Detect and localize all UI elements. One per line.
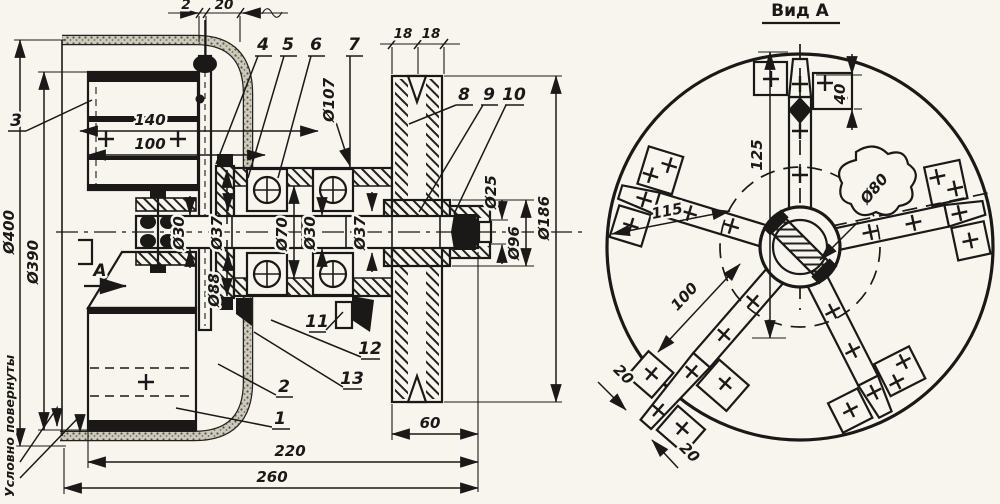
dim-2: 2 bbox=[181, 0, 190, 13]
part-8: 8 bbox=[458, 85, 470, 105]
dim-dia390: Ø390 bbox=[24, 240, 42, 285]
drawing-sheet: 2 20 18 18 140 100 Ø400 Ø390 Ø30 bbox=[0, 0, 1000, 504]
dim-dia30b: Ø30 bbox=[301, 216, 319, 251]
part-1: 1 bbox=[274, 409, 286, 429]
part-11: 11 bbox=[305, 312, 329, 332]
note-rotated-label: Условно повернуты bbox=[2, 355, 17, 497]
part-4: 4 bbox=[256, 35, 269, 55]
note-rotated: Условно повернуты bbox=[2, 355, 80, 497]
dim-dia30a: Ø30 bbox=[170, 216, 188, 251]
view-arrow-label: А bbox=[91, 261, 106, 281]
dim-220: 220 bbox=[274, 442, 305, 460]
dim-dia37a: Ø37 bbox=[208, 216, 226, 251]
gland-box bbox=[336, 302, 352, 328]
part-9: 9 bbox=[483, 85, 495, 105]
part-7: 7 bbox=[348, 35, 360, 55]
part-3: 3 bbox=[10, 111, 22, 131]
dim-dia70: Ø70 bbox=[273, 217, 291, 252]
part-2: 2 bbox=[278, 377, 290, 397]
dim-60: 60 bbox=[420, 414, 441, 432]
part-12: 12 bbox=[358, 339, 382, 359]
dim-dia186: Ø186 bbox=[535, 196, 553, 241]
dim-140: 140 bbox=[134, 111, 165, 129]
dim-dia37b: Ø37 bbox=[351, 216, 369, 251]
dim-40: 40 bbox=[831, 84, 849, 106]
dim-dia107: Ø107 bbox=[320, 77, 338, 123]
technical-drawing: 2 20 18 18 140 100 Ø400 Ø390 Ø30 bbox=[0, 0, 1000, 504]
view-a: Вид А bbox=[598, 1, 993, 468]
part-13: 13 bbox=[340, 369, 364, 389]
section-view: 2 20 18 18 140 100 Ø400 Ø390 Ø30 bbox=[0, 0, 588, 497]
dim-260: 260 bbox=[256, 468, 287, 486]
dim-20: 20 bbox=[215, 0, 234, 13]
dim-dia400: Ø400 bbox=[0, 210, 18, 255]
part-6: 6 bbox=[310, 35, 322, 55]
dim-18a: 18 bbox=[394, 26, 413, 42]
dim-20a: 20 bbox=[610, 361, 637, 388]
view-a-title: Вид А bbox=[771, 1, 830, 21]
dim-dia96: Ø96 bbox=[505, 226, 523, 261]
part-5: 5 bbox=[282, 35, 294, 55]
dim-125: 125 bbox=[748, 139, 766, 170]
seal-lower-right bbox=[352, 296, 374, 332]
part-10: 10 bbox=[502, 85, 526, 105]
dim-dia25: Ø25 bbox=[482, 175, 500, 210]
dim-dia88: Ø88 bbox=[205, 273, 223, 308]
dim-100: 100 bbox=[134, 135, 165, 153]
dim-18b: 18 bbox=[422, 26, 441, 42]
rotor-hub bbox=[760, 207, 840, 287]
